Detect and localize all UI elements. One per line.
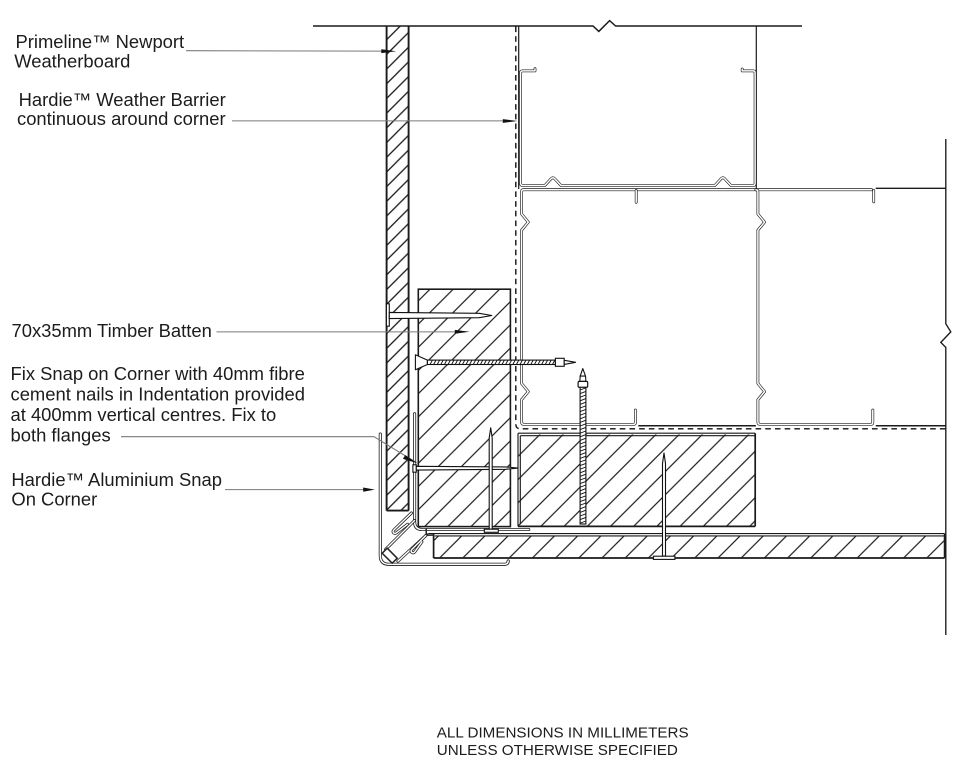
svg-text:cement nails in Indentation pr: cement nails in Indentation provided [11,383,305,404]
svg-text:70x35mm Timber Batten: 70x35mm Timber Batten [12,320,212,341]
svg-text:UNLESS OTHERWISE SPECIFIED: UNLESS OTHERWISE SPECIFIED [437,742,678,759]
svg-text:at 400mm vertical centres. Fix: at 400mm vertical centres. Fix to [11,404,277,425]
svg-text:Fix Snap on Corner with 40mm f: Fix Snap on Corner with 40mm fibre [11,363,305,384]
svg-text:both flanges: both flanges [11,424,111,445]
svg-text:ALL DIMENSIONS IN MILLIMETERS: ALL DIMENSIONS IN MILLIMETERS [437,724,689,741]
svg-text:Weatherboard: Weatherboard [14,51,130,72]
svg-text:Hardie™ Aluminium Snap: Hardie™ Aluminium Snap [11,469,222,490]
svg-text:Primeline™ Newport: Primeline™ Newport [16,31,185,52]
svg-text:On Corner: On Corner [11,489,97,510]
svg-text:Hardie™ Weather Barrier: Hardie™ Weather Barrier [19,89,226,110]
svg-text:continuous around corner: continuous around corner [17,108,226,129]
